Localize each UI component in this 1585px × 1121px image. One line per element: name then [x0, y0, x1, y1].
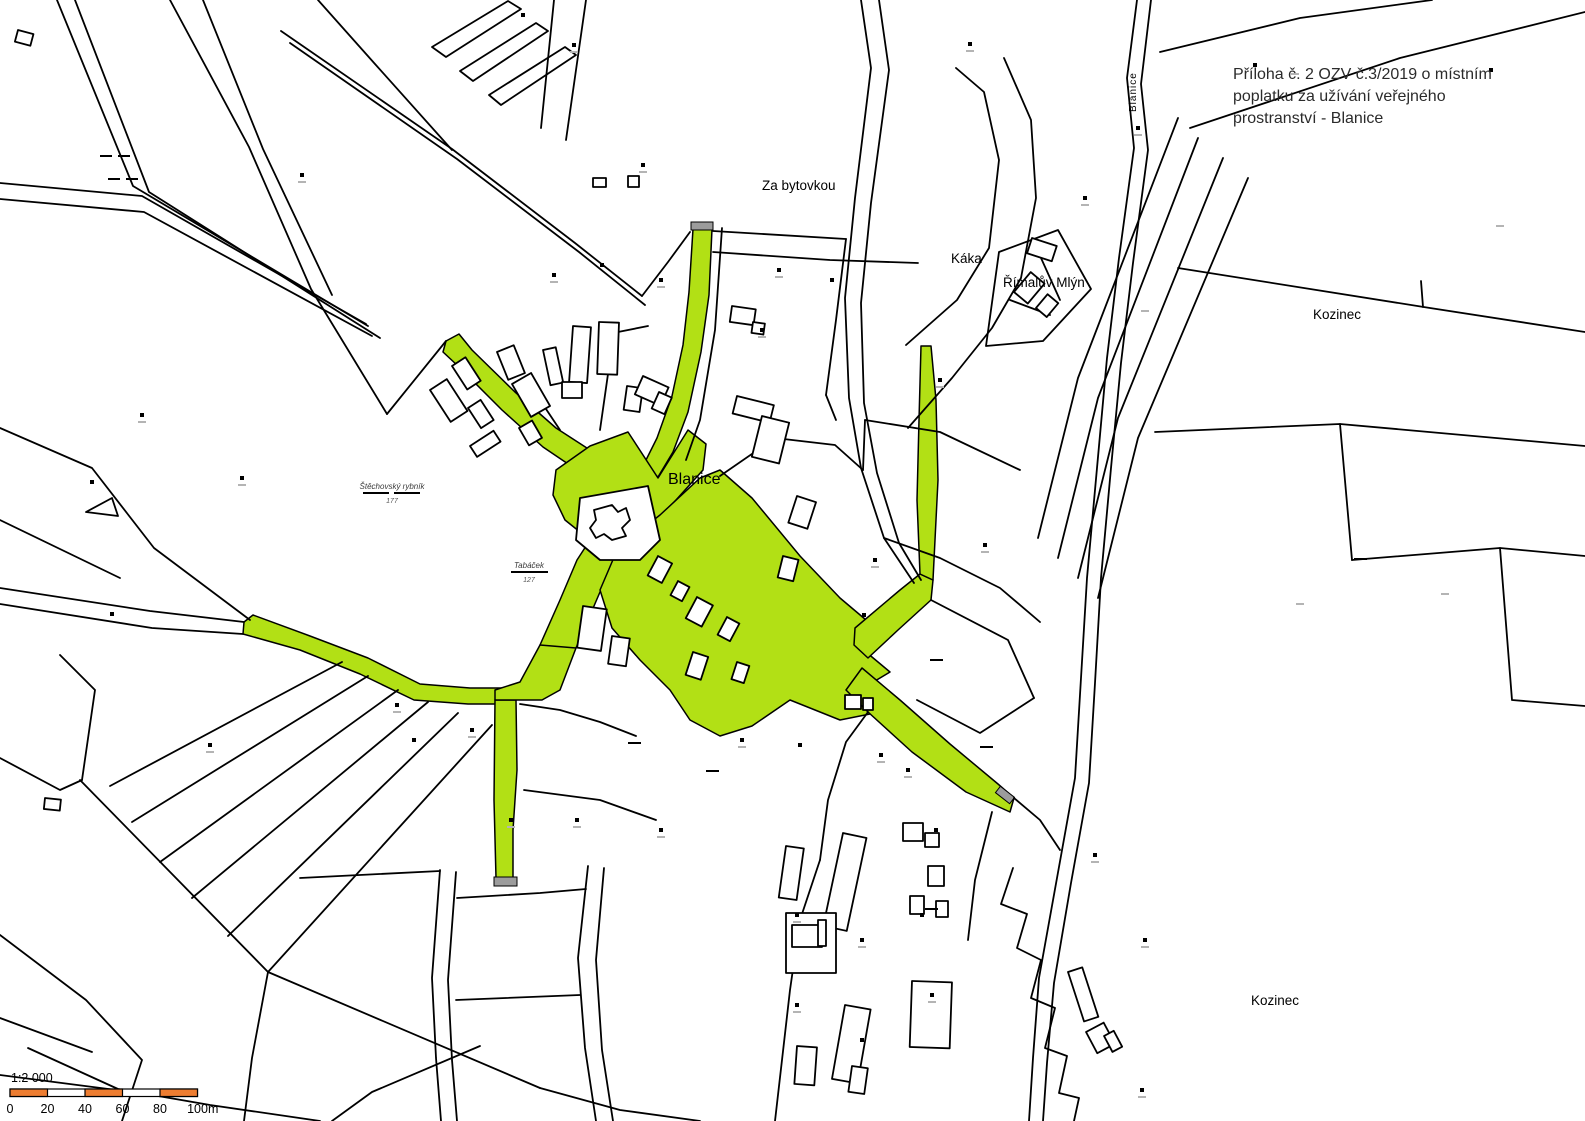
map-canvas: Za bytovkou Káka Římalův Mlýn Kozinec Ko… [0, 0, 1585, 1121]
scale-ratio: 1:2 000 [11, 1071, 53, 1085]
label-za-bytovkou: Za bytovkou [762, 178, 836, 193]
scale-bar: 1:2 000 0 20 40 60 80 100 m [7, 1071, 219, 1116]
buildings [15, 30, 1122, 1094]
label-kozinec-top: Kozinec [1313, 307, 1361, 322]
scale-tick-100: 100 [187, 1102, 208, 1116]
label-kozinec-bottom: Kozinec [1251, 993, 1299, 1008]
label-tabacek: Tabáček [514, 561, 545, 570]
title-block: Příloha č. 2 OZV č.3/2019 o místním popl… [1233, 66, 1492, 127]
scale-tick-80: 80 [153, 1102, 167, 1116]
cadastral-map-page: Za bytovkou Káka Římalův Mlýn Kozinec Ko… [0, 0, 1585, 1121]
scale-tick-0: 0 [7, 1102, 14, 1116]
title-line-1: Příloha č. 2 OZV č.3/2019 o místním [1233, 66, 1492, 83]
label-blanice-village: Blanice [668, 471, 721, 488]
label-blanice-river: Blanice [1128, 72, 1139, 112]
label-kaka: Káka [951, 251, 982, 266]
label-stechovsky-rybnik: Štěchovský rybník [360, 482, 426, 491]
label-rimaluv-mlyn: Římalův Mlýn [1003, 275, 1085, 290]
title-line-2: poplatku za užívání veřejného [1233, 88, 1446, 105]
scale-tick-60: 60 [116, 1102, 130, 1116]
scale-tick-20: 20 [41, 1102, 55, 1116]
scale-bar-orange-segments [10, 1089, 198, 1097]
label-stechovsky-parcel: 177 [386, 498, 399, 505]
title-line-3: prostranství - Blanice [1233, 110, 1383, 127]
scale-tick-40: 40 [78, 1102, 92, 1116]
scale-unit: m [208, 1102, 218, 1116]
label-tabacek-parcel: 127 [523, 577, 536, 584]
